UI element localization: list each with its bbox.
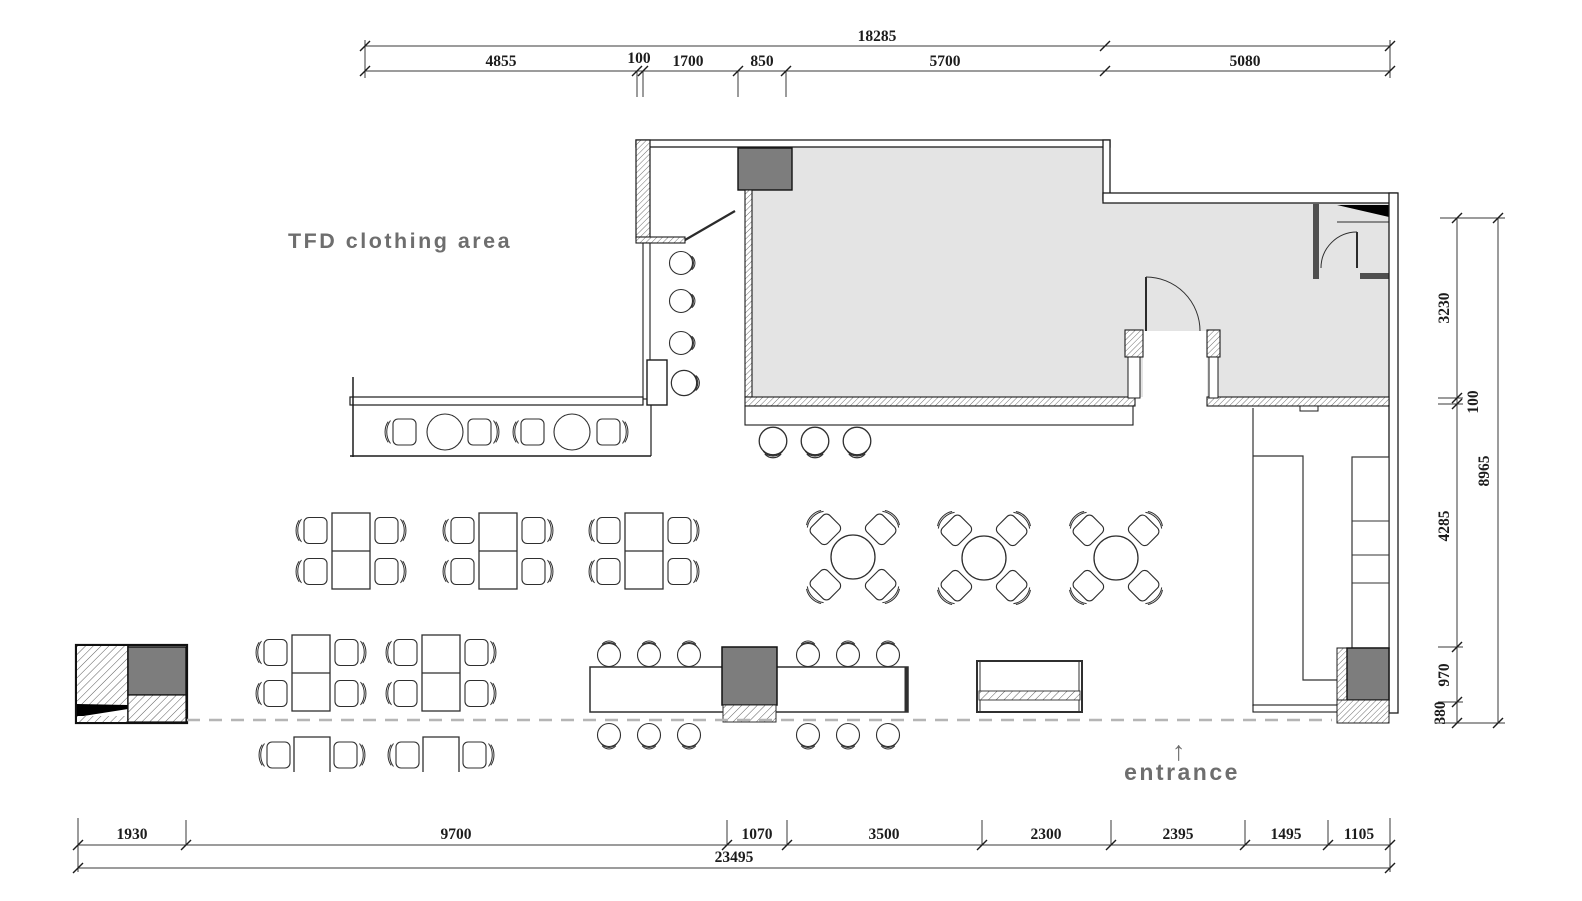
- dim-bottom-seg: 3500: [869, 826, 900, 843]
- dim-right-seg: 3230: [1436, 292, 1453, 323]
- stool: [877, 724, 900, 749]
- dim-top-total: 18285: [858, 28, 897, 45]
- dim-top-seg: 850: [750, 53, 774, 70]
- bench: [977, 661, 1082, 712]
- stool: [837, 724, 860, 749]
- stool: [801, 427, 829, 458]
- stool: [797, 641, 820, 666]
- stool: [638, 724, 661, 749]
- wall-step-vertical: [1103, 140, 1110, 200]
- table-4-seat: [386, 635, 496, 711]
- entrance-label: entrance: [1124, 759, 1240, 785]
- dark-equipment-block: [738, 148, 792, 190]
- dim-top-seg: 1700: [673, 53, 704, 70]
- wall-step-horizontal: [1103, 193, 1397, 203]
- door-post-right-lower: [1209, 357, 1218, 398]
- dim-right-seg: 4285: [1436, 510, 1453, 541]
- stool: [877, 641, 900, 666]
- stair-hatch-right: [128, 695, 186, 722]
- table-4-seat: [256, 635, 366, 711]
- dim-right-total: 8965: [1476, 455, 1493, 486]
- door-recess: [1143, 331, 1207, 397]
- wall-bottom-right-hatched: [1207, 397, 1389, 406]
- dim-bottom-seg: 1930: [117, 826, 148, 843]
- stool: [759, 427, 787, 458]
- dim-top-seg: 4855: [486, 53, 517, 70]
- corner-dark-block: [1347, 648, 1389, 700]
- shelving: [1352, 457, 1389, 648]
- stool: [670, 332, 695, 355]
- wall-stub-hatched: [636, 237, 685, 243]
- stool: [837, 641, 860, 666]
- door-post-left-lower: [1128, 357, 1140, 398]
- stool: [638, 641, 661, 666]
- round-cafe-table: [427, 414, 463, 450]
- dim-bottom-seg: 1105: [1344, 826, 1374, 843]
- stool: [598, 641, 621, 666]
- table-round: [1065, 507, 1166, 608]
- stair-hatch-left: [77, 646, 128, 705]
- clothing-area-label: TFD clothing area: [288, 229, 512, 253]
- stool: [843, 427, 871, 458]
- wall-bottom-left-hatched: [745, 397, 1135, 406]
- floor-plan-canvas: TFD clothing area: [0, 0, 1582, 901]
- door-post-right: [1207, 330, 1220, 357]
- stool: [598, 724, 621, 749]
- dim-bottom-seg: 9700: [441, 826, 472, 843]
- dim-right-seg: 380: [1432, 701, 1449, 725]
- stool: [671, 370, 699, 395]
- dim-bottom-seg: 1070: [742, 826, 773, 843]
- counter-end-cabinet: [647, 360, 667, 405]
- chair: [385, 419, 416, 445]
- stair-hatch-strip: [77, 716, 128, 722]
- stool: [797, 724, 820, 749]
- dim-bottom-seg: 2395: [1163, 826, 1194, 843]
- dimension-bottom: 1930 9700 1070 3500 2300 2395 1495 1105 …: [73, 818, 1395, 873]
- corridor-counter: [1253, 456, 1337, 680]
- table-2-seat: [388, 737, 494, 772]
- wall-top: [636, 140, 1110, 147]
- structural-column: [722, 647, 777, 705]
- door-post-left: [1125, 330, 1143, 357]
- clothing-door-leaf: [685, 211, 735, 240]
- dim-top-seg: 5080: [1230, 53, 1261, 70]
- wall-mid-hatched: [745, 190, 752, 397]
- stool: [678, 724, 701, 749]
- table-2-seat: [259, 737, 365, 772]
- stool: [670, 252, 695, 275]
- floor-plan-drawing: TFD clothing area: [0, 0, 1582, 901]
- table-4-seat: [443, 513, 553, 589]
- corner-hatch-bottom: [1337, 700, 1389, 723]
- round-cafe-table: [554, 414, 590, 450]
- dim-bottom-seg: 2300: [1031, 826, 1062, 843]
- table-round: [802, 506, 903, 607]
- table-round: [933, 507, 1034, 608]
- bar-ledge: [745, 406, 1133, 425]
- dim-right-seg: 970: [1436, 663, 1453, 687]
- bench-back: [979, 691, 1080, 700]
- dimension-right: 3230 100 4285 970 380 8965: [1432, 213, 1505, 728]
- storefront: ↑ entrance: [187, 720, 1332, 785]
- counter-wall: [350, 397, 643, 405]
- closet-wall: [1313, 204, 1319, 279]
- dim-bottom-seg: 1495: [1271, 826, 1302, 843]
- back-room-floor: [752, 147, 1389, 397]
- chair: [468, 419, 499, 445]
- back-room: [738, 147, 1389, 397]
- dim-bottom-total: 23495: [715, 849, 754, 866]
- stool: [670, 290, 695, 313]
- dimension-top: 18285 4855 100 1700 850 5700 5080: [360, 28, 1395, 97]
- closet-counter: [1360, 273, 1389, 279]
- dining-furniture: [256, 506, 1167, 772]
- chair: [513, 419, 544, 445]
- chair: [597, 419, 628, 445]
- dim-top-seg: 100: [627, 50, 651, 67]
- stair-block: [76, 645, 187, 723]
- table-4-seat: [296, 513, 406, 589]
- stool: [678, 641, 701, 666]
- wall-notch: [1300, 406, 1318, 411]
- dim-top-seg: 5700: [930, 53, 961, 70]
- dim-right-seg: 100: [1465, 390, 1482, 414]
- table-4-seat: [589, 513, 699, 589]
- stair-dark-cell: [128, 647, 186, 695]
- wall-right: [1389, 193, 1398, 713]
- wall-left-hatched: [636, 140, 650, 238]
- entry-corridor: [1253, 408, 1389, 723]
